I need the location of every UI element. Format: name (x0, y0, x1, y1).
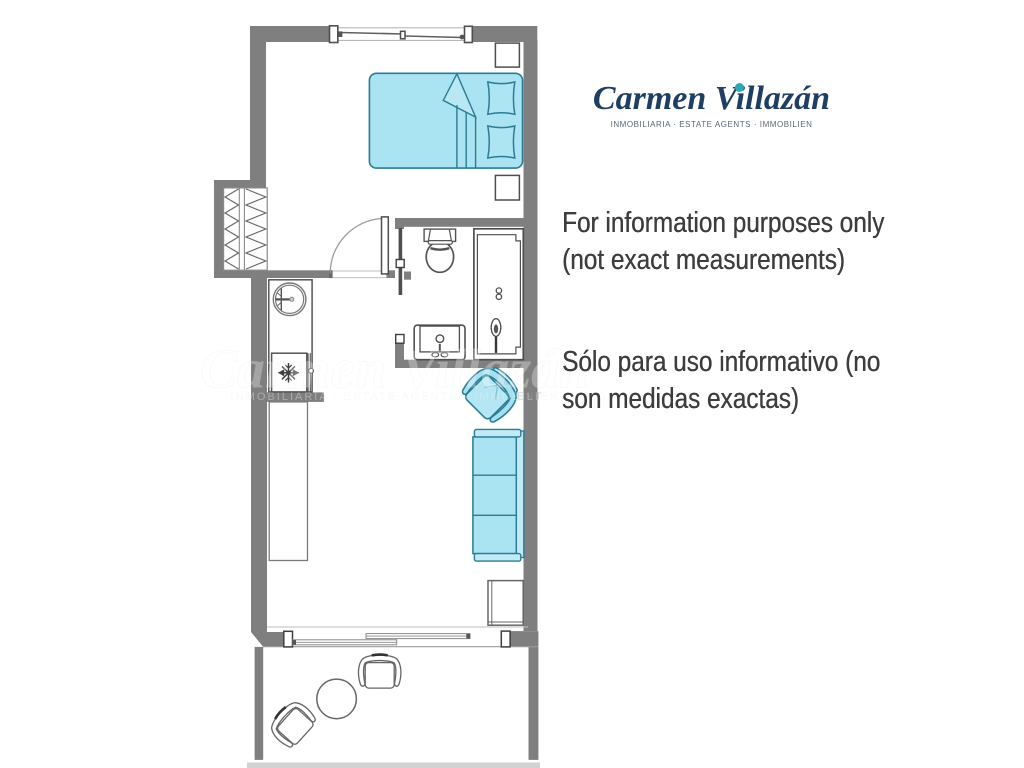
svg-text:ENT: ENT (517, 391, 543, 403)
svg-text:INMOBILIARIA - ESTATE AGENTS -: INMOBILIARIA - ESTATE AGENTS - IMMOBILIE… (231, 391, 560, 403)
